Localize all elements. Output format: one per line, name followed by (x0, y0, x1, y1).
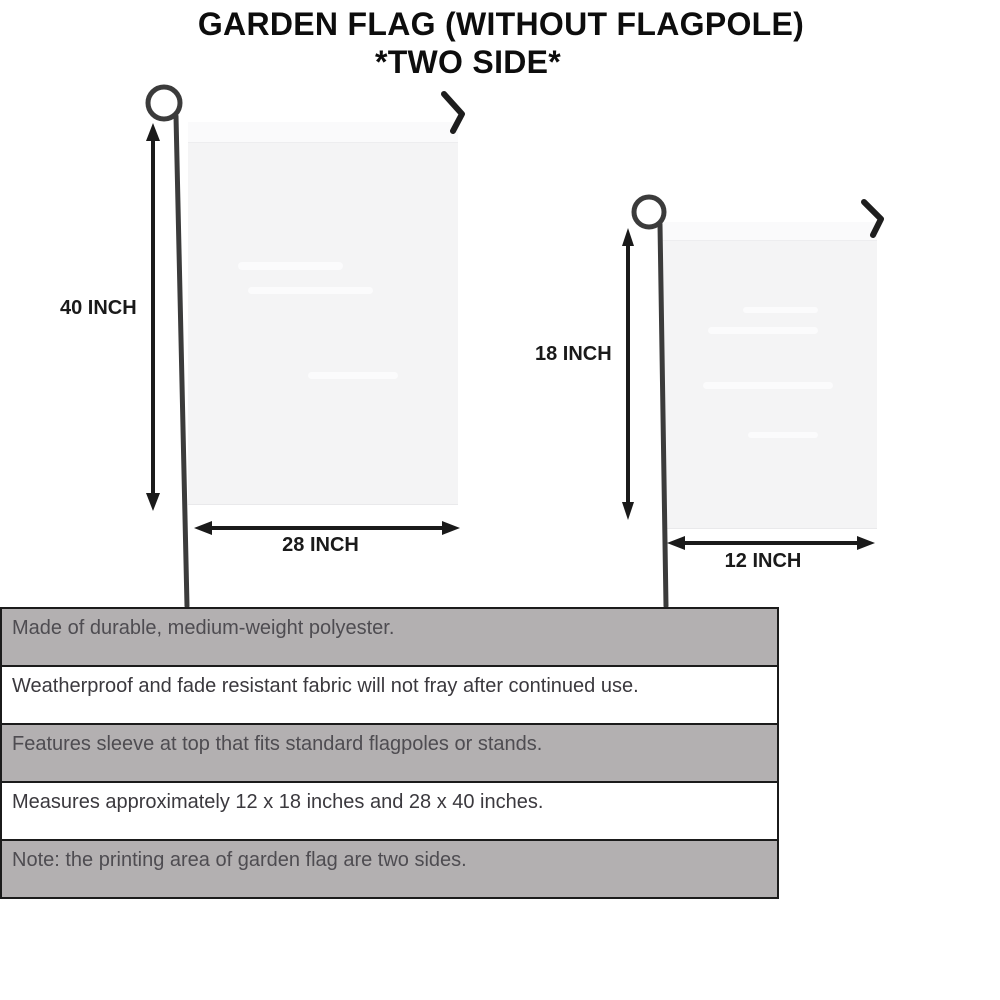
small-flag-width-label: 12 INCH (688, 550, 838, 573)
flag-pattern-streak (708, 327, 818, 334)
small-flagpole-loop-icon (634, 197, 664, 227)
small-flag (663, 222, 877, 529)
small-width-arrow (667, 536, 875, 550)
page-subtitle: *TWO SIDE* (0, 43, 936, 81)
feature-row: Features sleeve at top that fits standar… (2, 725, 777, 783)
large-flag-width-label: 28 INCH (238, 534, 403, 557)
feature-row: Made of durable, medium-weight polyester… (2, 609, 777, 667)
feature-row: Measures approximately 12 x 18 inches an… (2, 783, 777, 841)
large-flag (188, 122, 458, 505)
product-spec-image: GARDEN FLAG (WITHOUT FLAGPOLE) *TWO SIDE… (0, 0, 1000, 1000)
flag-pattern-streak (743, 307, 818, 313)
large-flagpole (176, 116, 187, 606)
large-flag-sleeve (188, 122, 458, 143)
flag-pattern-streak (238, 262, 343, 270)
flag-pattern-streak (308, 372, 398, 379)
feature-row: Weatherproof and fade resistant fabric w… (2, 667, 777, 725)
flag-pattern-streak (703, 382, 833, 389)
large-width-arrow (194, 521, 460, 535)
small-flag-sleeve (663, 222, 877, 241)
large-flagpole-loop-icon (148, 87, 180, 119)
large-height-arrow (146, 123, 160, 511)
features-table: Made of durable, medium-weight polyester… (0, 607, 779, 899)
flag-pattern-streak (248, 287, 373, 294)
small-flag-height-label: 18 INCH (535, 343, 612, 366)
small-height-arrow (622, 228, 634, 520)
flag-pattern-streak (748, 432, 818, 438)
large-flag-height-label: 40 INCH (60, 297, 137, 320)
feature-row: Note: the printing area of garden flag a… (2, 841, 777, 897)
page-title: GARDEN FLAG (WITHOUT FLAGPOLE) (0, 5, 1000, 43)
